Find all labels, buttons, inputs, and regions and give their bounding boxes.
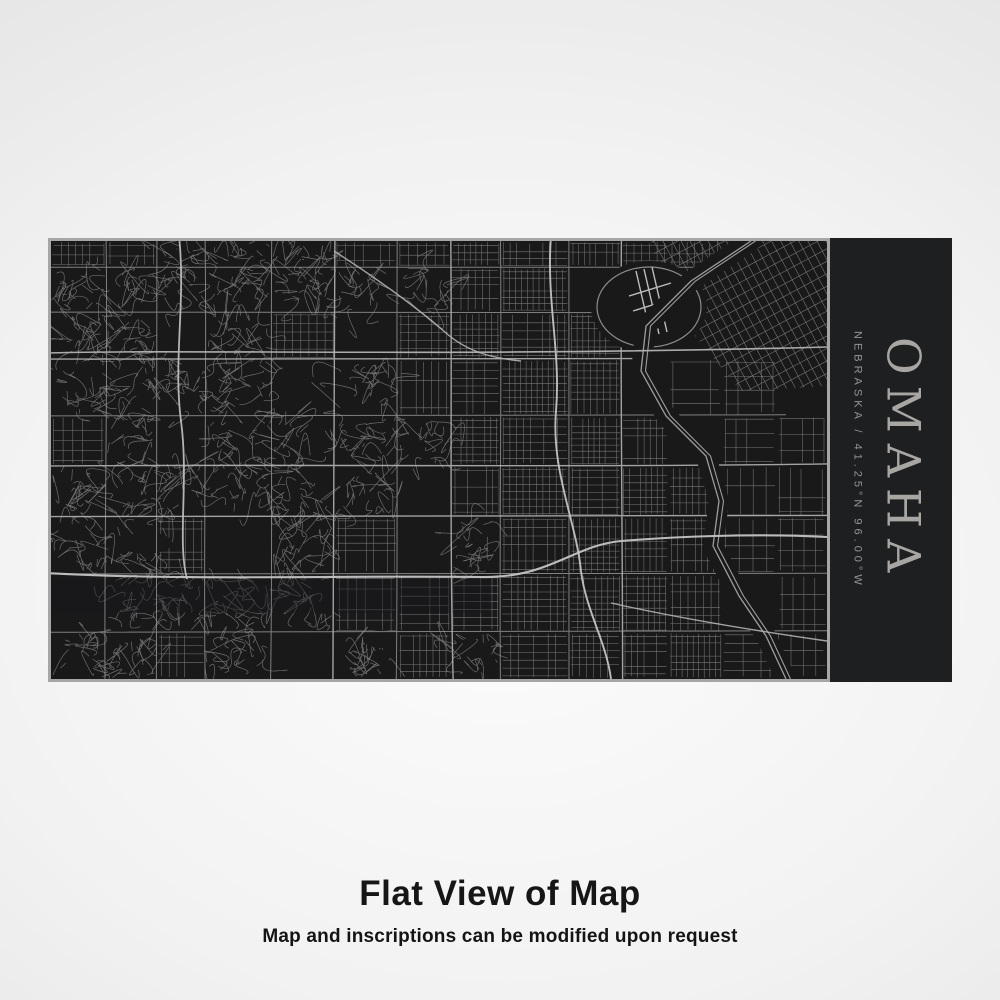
- inscription-panel: NEBRASKA / 41.25°N 96.00°W OMAHA: [830, 238, 952, 682]
- map-frame: [48, 238, 830, 682]
- city-inscription: OMAHA: [877, 337, 931, 583]
- caption-subtitle: Map and inscriptions can be modified upo…: [0, 926, 1000, 948]
- engraved-map-plate: NEBRASKA / 41.25°N 96.00°W OMAHA: [48, 238, 952, 682]
- caption-title: Flat View of Map: [0, 874, 1000, 914]
- product-mockup: NEBRASKA / 41.25°N 96.00°W OMAHA Flat Vi…: [0, 0, 1000, 1000]
- city-map-graphic: [51, 241, 827, 679]
- caption: Flat View of Map Map and inscriptions ca…: [0, 874, 1000, 948]
- location-inscription: NEBRASKA / 41.25°N 96.00°W: [852, 331, 864, 589]
